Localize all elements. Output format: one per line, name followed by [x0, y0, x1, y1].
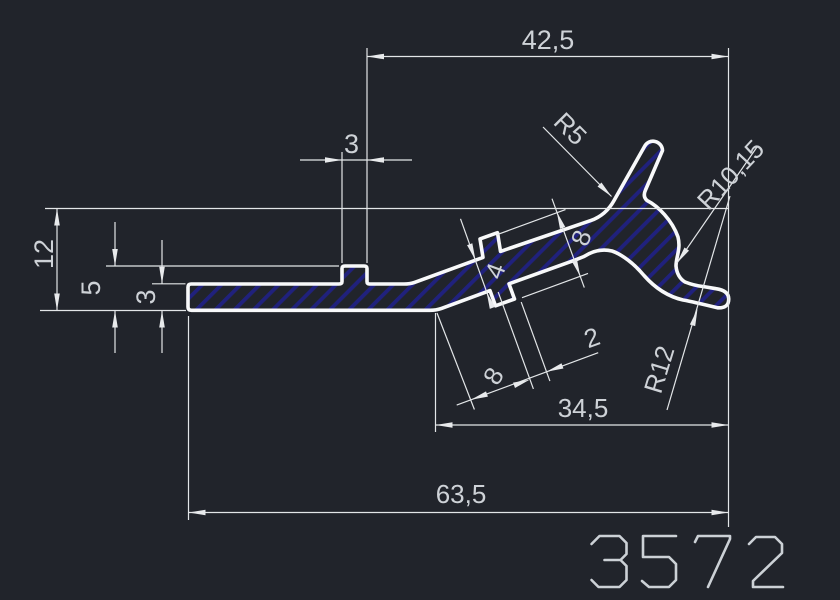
svg-text:42,5: 42,5 [522, 25, 575, 55]
svg-text:3: 3 [131, 289, 161, 304]
svg-text:12: 12 [29, 239, 59, 269]
svg-text:5: 5 [76, 280, 106, 295]
svg-text:63,5: 63,5 [436, 479, 487, 509]
svg-text:3: 3 [344, 129, 359, 159]
svg-text:34,5: 34,5 [558, 393, 609, 423]
